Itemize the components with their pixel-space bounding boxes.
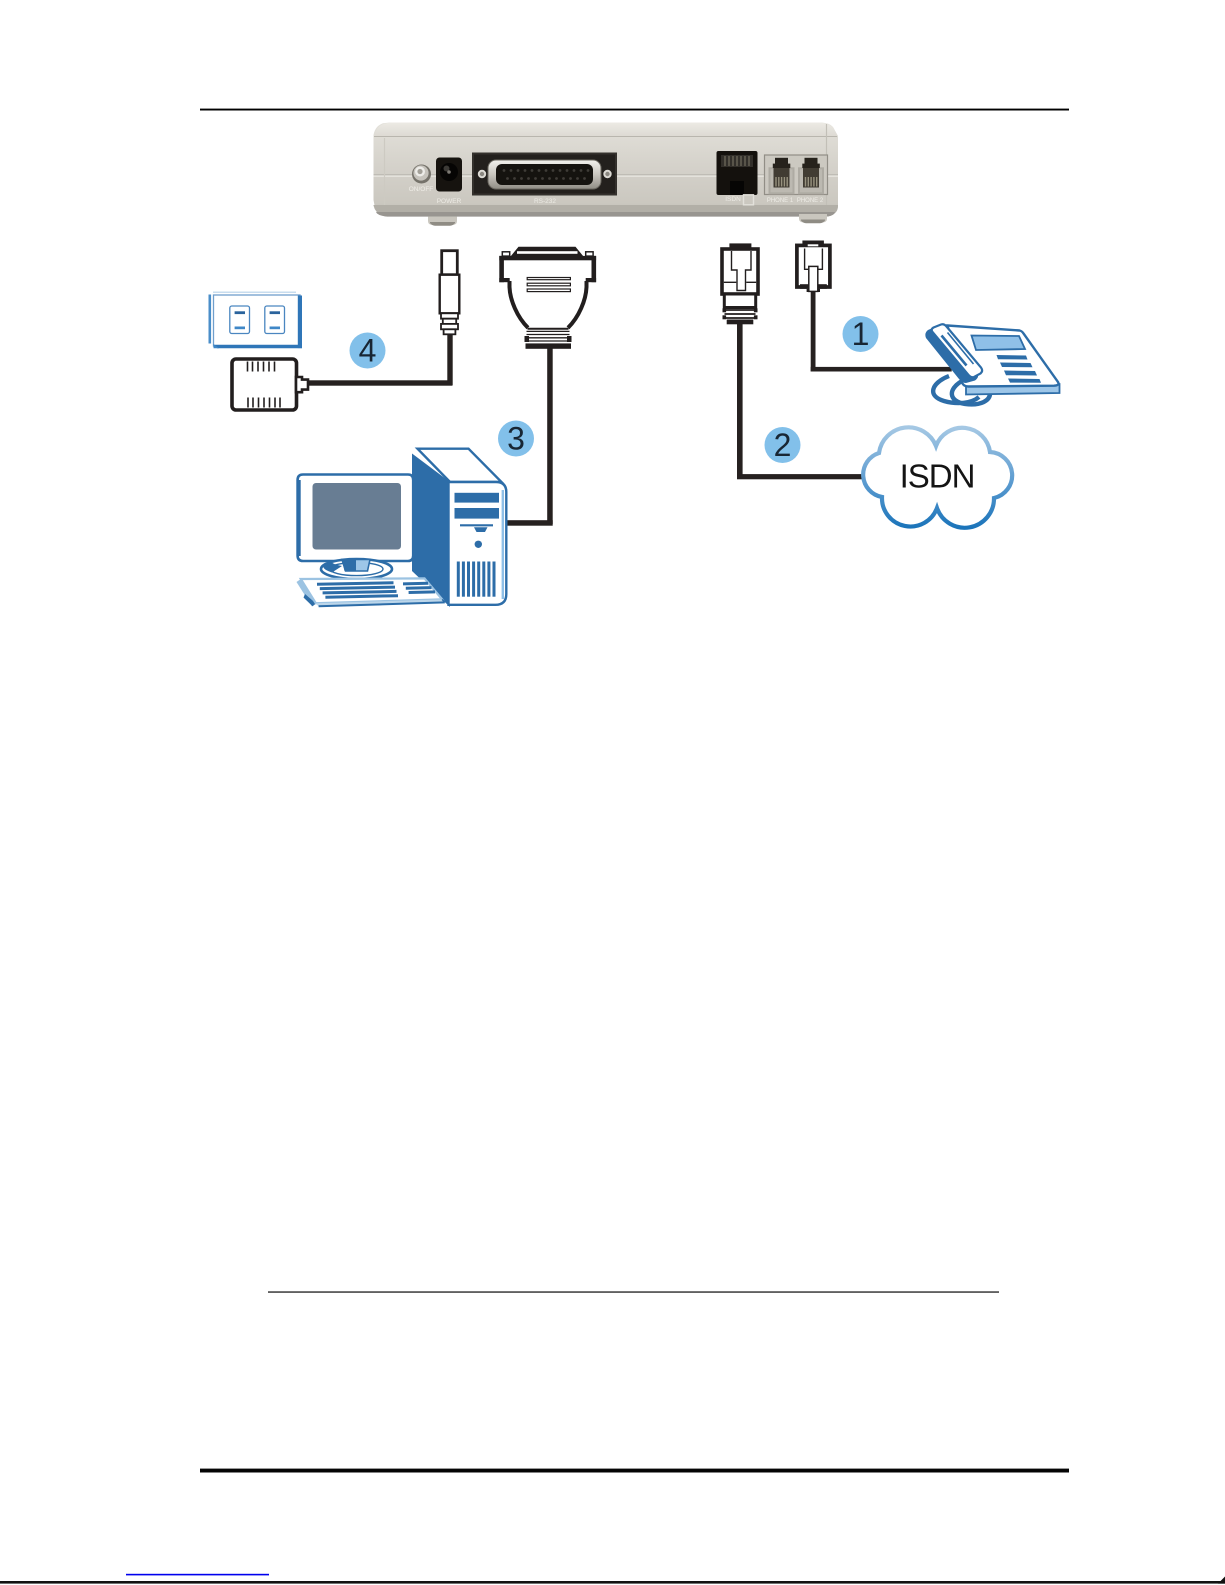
svg-text:PHONE 1: PHONE 1	[767, 198, 794, 204]
svg-text:PHONE 2: PHONE 2	[797, 198, 824, 204]
svg-text:POWER: POWER	[437, 198, 462, 205]
svg-text:4: 4	[359, 333, 377, 369]
svg-text:ISDN: ISDN	[725, 196, 741, 203]
svg-text:RS-232: RS-232	[534, 198, 556, 205]
svg-text:3: 3	[507, 421, 525, 457]
svg-text:ON/OFF: ON/OFF	[409, 186, 434, 193]
svg-text:2: 2	[774, 427, 792, 463]
svg-text:ISDN: ISDN	[900, 458, 975, 495]
svg-text:1: 1	[852, 316, 870, 352]
